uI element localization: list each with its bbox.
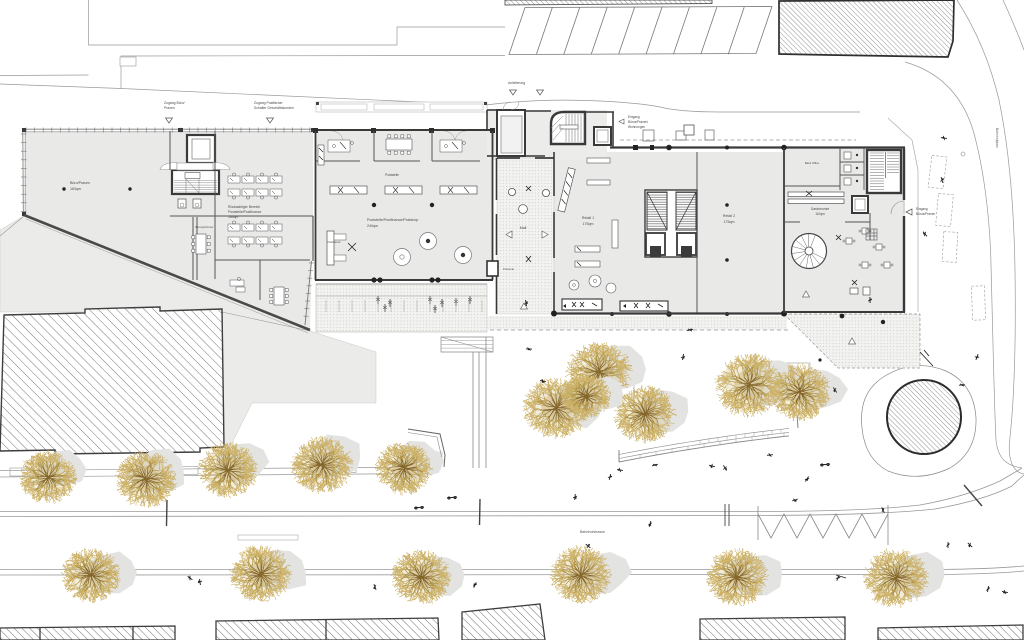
svg-text:Wohnungen: Wohnungen (628, 125, 645, 129)
svg-text:Rückwärtiger Bereich: Rückwärtiger Bereich (228, 205, 260, 209)
svg-text:Eingang: Eingang (628, 115, 640, 119)
svg-text:Anlieferung: Anlieferung (508, 81, 525, 85)
svg-text:Back Office: Back Office (805, 161, 820, 165)
svg-text:Retail 1: Retail 1 (582, 216, 594, 220)
svg-text:Poststelle/Postfinance/Postsho: Poststelle/Postfinance/Postshop (367, 218, 418, 222)
svg-text:Praxen: Praxen (164, 106, 175, 110)
svg-text:Eingang: Eingang (916, 207, 928, 211)
svg-text:160qm: 160qm (228, 215, 239, 219)
svg-text:175qm: 175qm (724, 220, 735, 224)
svg-text:Sitzungszimmer: Sitzungszimmer (195, 225, 214, 229)
svg-text:Zugang Büro/: Zugang Büro/ (164, 101, 185, 105)
svg-text:Bahnhofplatz: Bahnhofplatz (995, 128, 999, 148)
svg-text:Büro/Praxen: Büro/Praxen (70, 181, 90, 185)
svg-text:Poststelle: Poststelle (385, 173, 399, 177)
svg-text:Büros/Praxen: Büros/Praxen (916, 212, 936, 216)
svg-text:Bahnhofstrasse: Bahnhofstrasse (580, 530, 605, 534)
svg-text:Poststelle/Postfinance: Poststelle/Postfinance (228, 210, 261, 214)
svg-text:Postfinance: Postfinance (327, 240, 341, 244)
svg-text:240qm: 240qm (367, 224, 378, 228)
svg-text:163qm: 163qm (70, 187, 81, 191)
svg-text:Schalter Geschäftskunden: Schalter Geschäftskunden (254, 106, 294, 110)
svg-text:Retail 2: Retail 2 (723, 214, 735, 218)
svg-text:Postomat: Postomat (503, 267, 514, 271)
svg-text:Mall: Mall (520, 226, 527, 230)
svg-text:110qm: 110qm (815, 212, 825, 216)
svg-text:Büros/Praxen/: Büros/Praxen/ (628, 120, 648, 124)
svg-text:Gastronomie: Gastronomie (811, 207, 829, 211)
svg-text:175qm: 175qm (583, 222, 594, 226)
svg-text:Zugang Postfächer: Zugang Postfächer (254, 101, 284, 105)
